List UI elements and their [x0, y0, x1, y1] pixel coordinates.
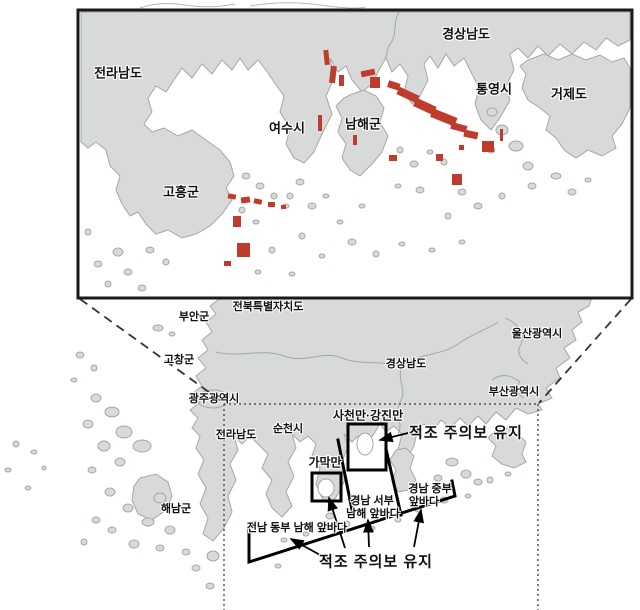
zone-label-gyeongnam-jungbu-2: 앞바다 — [409, 493, 439, 509]
zone-label-gamak: 가막만 — [308, 454, 341, 471]
annotation-warning-top: 적조 주의보 유지 — [409, 422, 523, 443]
label-jeonbuk: 전북특별자치도 — [233, 298, 304, 314]
label-gwangju: 광주광역시 — [189, 390, 240, 406]
label-jeonnam: 전라남도 — [216, 426, 256, 442]
zone-label-sacheon-gangjin: 사천만·강진만 — [333, 407, 403, 424]
red-tide-map-page: 전라남도 경상남도 통영시 거제도 여수시 남해군 고흥군 전북특별자치도 부안… — [0, 0, 640, 610]
inset-label-namhae: 남해군 — [345, 114, 381, 133]
label-buan: 부안군 — [179, 308, 209, 324]
inset-label-yeosu: 여수시 — [269, 118, 305, 137]
background-coast-sliver — [140, 3, 365, 8]
inset-label-goheung: 고흥군 — [163, 182, 199, 201]
label-suncheon: 순천시 — [273, 420, 303, 436]
zone-label-gyeongnam-seobu-2: 남해 앞바다 — [346, 505, 400, 521]
inset-label-geoje: 거제도 — [551, 84, 587, 103]
label-ulsan: 울산광역시 — [512, 325, 563, 341]
zone-label-jeonnam-dongbu: 전남 동부 남해 앞바다 — [247, 519, 347, 535]
inset-map — [78, 10, 632, 298]
label-busan: 부산광역시 — [489, 383, 540, 399]
label-haenam: 해남군 — [161, 500, 191, 516]
inset-label-jeollanamdo: 전라남도 — [94, 63, 142, 82]
inset-label-gyeongsangnamdo: 경상남도 — [442, 24, 490, 43]
label-gochang: 고창군 — [164, 351, 194, 367]
inset-label-tongyeong: 통영시 — [476, 79, 512, 98]
gamak-bay — [318, 479, 334, 497]
annotation-warning-bottom: 적조 주의보 유지 — [319, 551, 433, 572]
sacheon-bay — [357, 433, 373, 455]
label-gyeongnam: 경상남도 — [386, 355, 426, 371]
